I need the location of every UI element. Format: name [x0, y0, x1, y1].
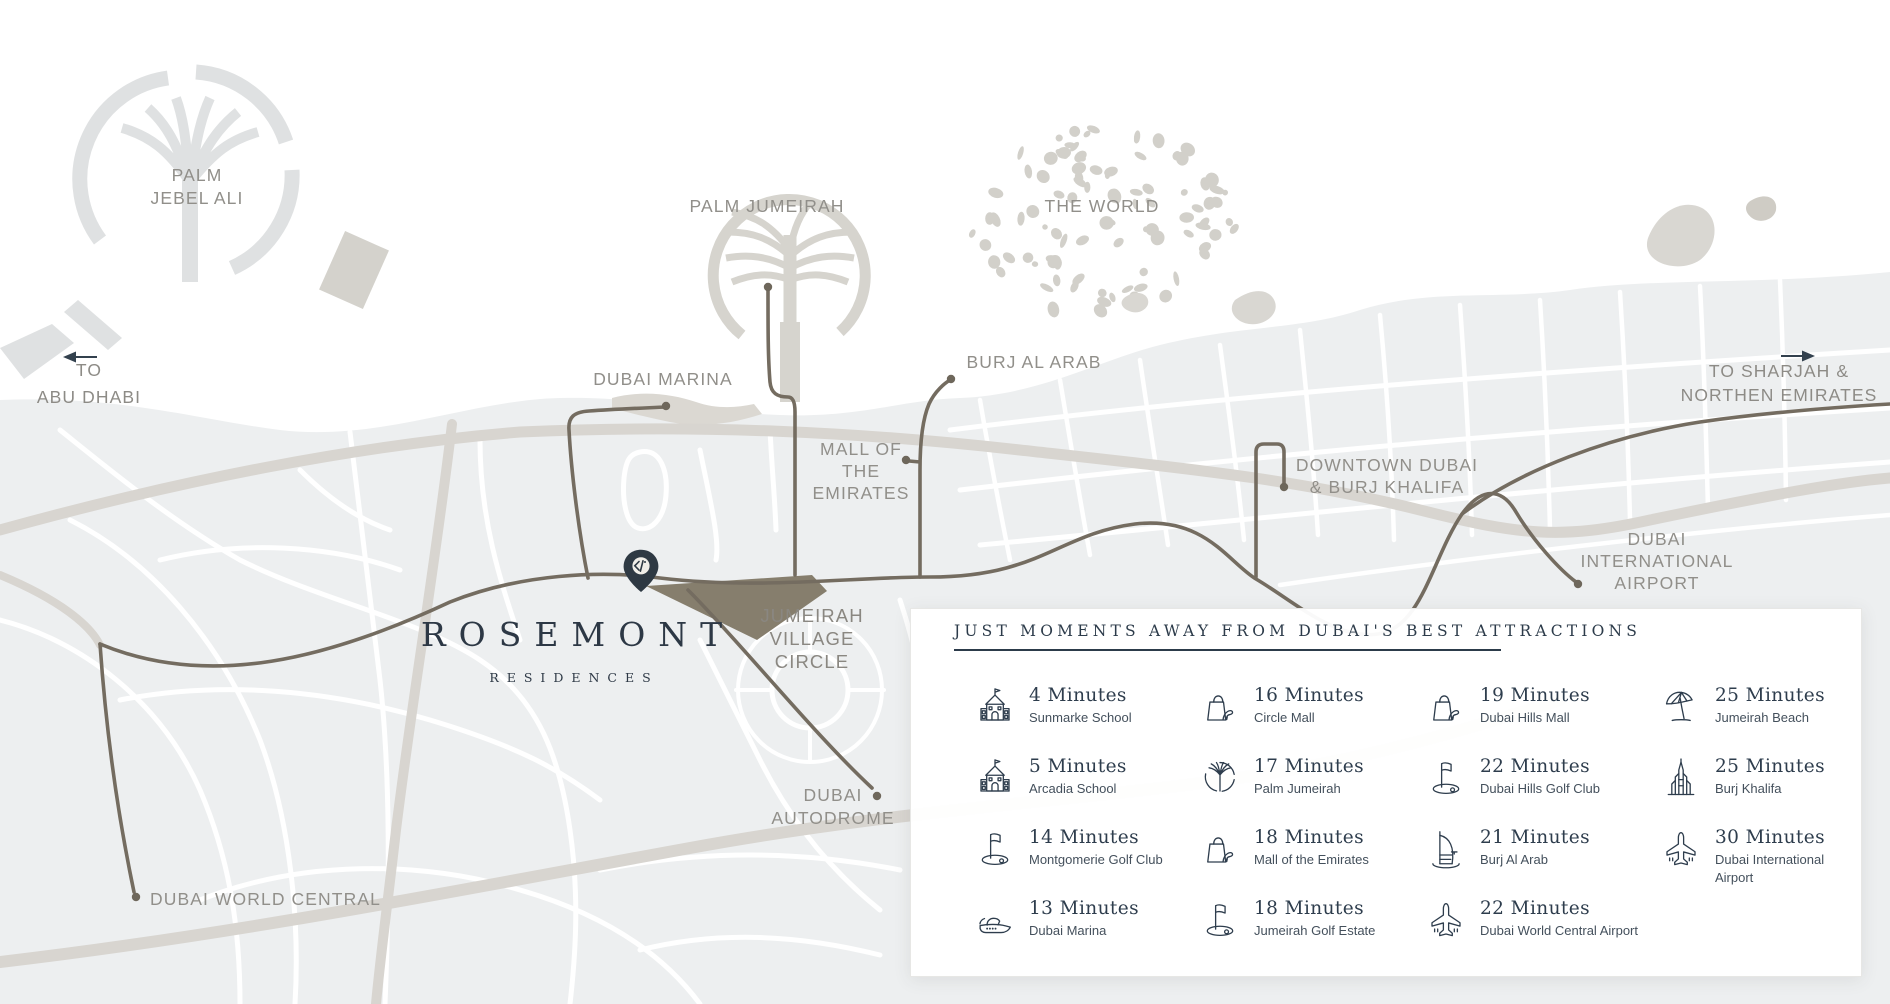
label-dxb-2: INTERNATIONAL [1580, 551, 1733, 571]
attraction-time: 22 Minutes [1480, 756, 1600, 778]
label-palm-jebel-ali: PALM [172, 165, 223, 185]
attraction-time: 18 Minutes [1254, 898, 1375, 920]
label-autodrome-2: AUTODROME [771, 808, 894, 828]
attraction-time: 4 Minutes [1029, 685, 1132, 707]
attraction-time: 16 Minutes [1254, 685, 1364, 707]
beach-umbrella-icon [1660, 684, 1702, 728]
attraction-time: 14 Minutes [1029, 827, 1163, 849]
attraction-item: 22 Minutes Dubai World Central Airport [1425, 897, 1660, 968]
shopping-bag-icon [1199, 826, 1241, 870]
shopping-bag-icon [1425, 684, 1467, 728]
attraction-item: 25 Minutes Jumeirah Beach [1660, 684, 1847, 755]
attraction-item: 13 Minutes Dubai Marina [974, 897, 1199, 968]
attraction-item: 22 Minutes Dubai Hills Golf Club [1425, 755, 1660, 826]
panel-title-underline [954, 649, 1501, 651]
attraction-item: 16 Minutes Circle Mall [1199, 684, 1425, 755]
burj-khalifa-icon [1660, 755, 1702, 799]
label-burj-al-arab: BURJ AL ARAB [966, 352, 1101, 372]
attraction-name: Burj Al Arab [1480, 851, 1590, 869]
rosemont-logo-subtitle: RESIDENCES [489, 670, 658, 685]
label-dxb-3: AIRPORT [1614, 573, 1699, 593]
label-moe-1: MALL OF [820, 439, 902, 459]
attraction-time: 18 Minutes [1254, 827, 1369, 849]
label-to-abu-dhabi-2: ABU DHABI [37, 387, 141, 407]
attraction-time: 13 Minutes [1029, 898, 1139, 920]
label-palm-jebel-ali-2: JEBEL ALI [151, 188, 244, 208]
attraction-name: Burj Khalifa [1715, 780, 1825, 798]
attraction-item: 18 Minutes Mall of the Emirates [1199, 826, 1425, 897]
golf-flag-icon [1425, 755, 1467, 799]
attraction-item: 17 Minutes Palm Jumeirah [1199, 755, 1425, 826]
label-downtown-2: & BURJ KHALIFA [1310, 477, 1464, 497]
attraction-name: Dubai International Airport [1715, 851, 1847, 887]
attraction-name: Mall of the Emirates [1254, 851, 1369, 869]
school-icon [974, 755, 1016, 799]
label-moe-2: THE [842, 461, 880, 481]
label-moe-3: EMIRATES [813, 483, 910, 503]
attraction-time: 19 Minutes [1480, 685, 1590, 707]
location-map-page: PALM JEBEL ALI PALM JUMEIRAH THE WORLD D… [0, 0, 1890, 1004]
attraction-name: Dubai World Central Airport [1480, 922, 1638, 940]
label-autodrome-1: DUBAI [804, 785, 863, 805]
label-to-sharjah-2: NORTHEN EMIRATES [1681, 385, 1878, 405]
palm-island-icon [1199, 755, 1241, 799]
attraction-name: Montgomerie Golf Club [1029, 851, 1163, 869]
label-to-sharjah-1: TO SHARJAH & [1709, 361, 1849, 381]
attraction-time: 5 Minutes [1029, 756, 1127, 778]
attraction-name: Arcadia School [1029, 780, 1127, 798]
attraction-item: 19 Minutes Dubai Hills Mall [1425, 684, 1660, 755]
label-downtown-1: DOWNTOWN DUBAI [1296, 455, 1478, 475]
golf-flag-icon [974, 826, 1016, 870]
school-icon [974, 684, 1016, 728]
label-dwc: DUBAI WORLD CENTRAL [150, 889, 381, 909]
attraction-name: Jumeirah Golf Estate [1254, 922, 1375, 940]
attraction-time: 22 Minutes [1480, 898, 1638, 920]
attraction-time: 25 Minutes [1715, 685, 1825, 707]
airplane-icon [1425, 897, 1467, 941]
attraction-item: 14 Minutes Montgomerie Golf Club [974, 826, 1199, 897]
yacht-icon [974, 897, 1016, 941]
attraction-name: Jumeirah Beach [1715, 709, 1825, 727]
label-jvc-1: JUMEIRAH [760, 605, 863, 626]
label-palm-jumeirah: PALM JUMEIRAH [690, 196, 845, 216]
attraction-time: 30 Minutes [1715, 827, 1847, 849]
golf-flag-icon [1199, 897, 1241, 941]
label-jvc-3: CIRCLE [775, 651, 849, 672]
attraction-name: Dubai Marina [1029, 922, 1139, 940]
airplane-icon [1660, 826, 1702, 870]
attraction-name: Dubai Hills Golf Club [1480, 780, 1600, 798]
attractions-panel: JUST MOMENTS AWAY FROM DUBAI'S BEST ATTR… [910, 608, 1862, 977]
burj-al-arab-icon [1425, 826, 1467, 870]
label-dxb-1: DUBAI [1628, 529, 1687, 549]
attraction-name: Dubai Hills Mall [1480, 709, 1590, 727]
attraction-item: 18 Minutes Jumeirah Golf Estate [1199, 897, 1425, 968]
rosemont-logo: ROSEMONT [421, 615, 735, 654]
shopping-bag-icon [1199, 684, 1241, 728]
attraction-name: Sunmarke School [1029, 709, 1132, 727]
attraction-name: Circle Mall [1254, 709, 1364, 727]
attraction-item: 4 Minutes Sunmarke School [974, 684, 1199, 755]
attraction-name: Palm Jumeirah [1254, 780, 1364, 798]
attraction-time: 17 Minutes [1254, 756, 1364, 778]
attraction-item: 30 Minutes Dubai International Airport [1660, 826, 1847, 897]
label-jvc-2: VILLAGE [770, 628, 855, 649]
attraction-item: 25 Minutes Burj Khalifa [1660, 755, 1847, 826]
label-the-world: THE WORLD [1045, 196, 1160, 216]
attraction-item: 21 Minutes Burj Al Arab [1425, 826, 1660, 897]
label-dubai-marina: DUBAI MARINA [593, 369, 733, 389]
label-to-abu-dhabi-1: TO [76, 360, 102, 380]
attraction-item: 5 Minutes Arcadia School [974, 755, 1199, 826]
attractions-grid: 4 Minutes Sunmarke School 16 Minutes Cir… [974, 684, 1847, 968]
attraction-time: 21 Minutes [1480, 827, 1590, 849]
attraction-time: 25 Minutes [1715, 756, 1825, 778]
panel-title: JUST MOMENTS AWAY FROM DUBAI'S BEST ATTR… [954, 622, 1641, 640]
